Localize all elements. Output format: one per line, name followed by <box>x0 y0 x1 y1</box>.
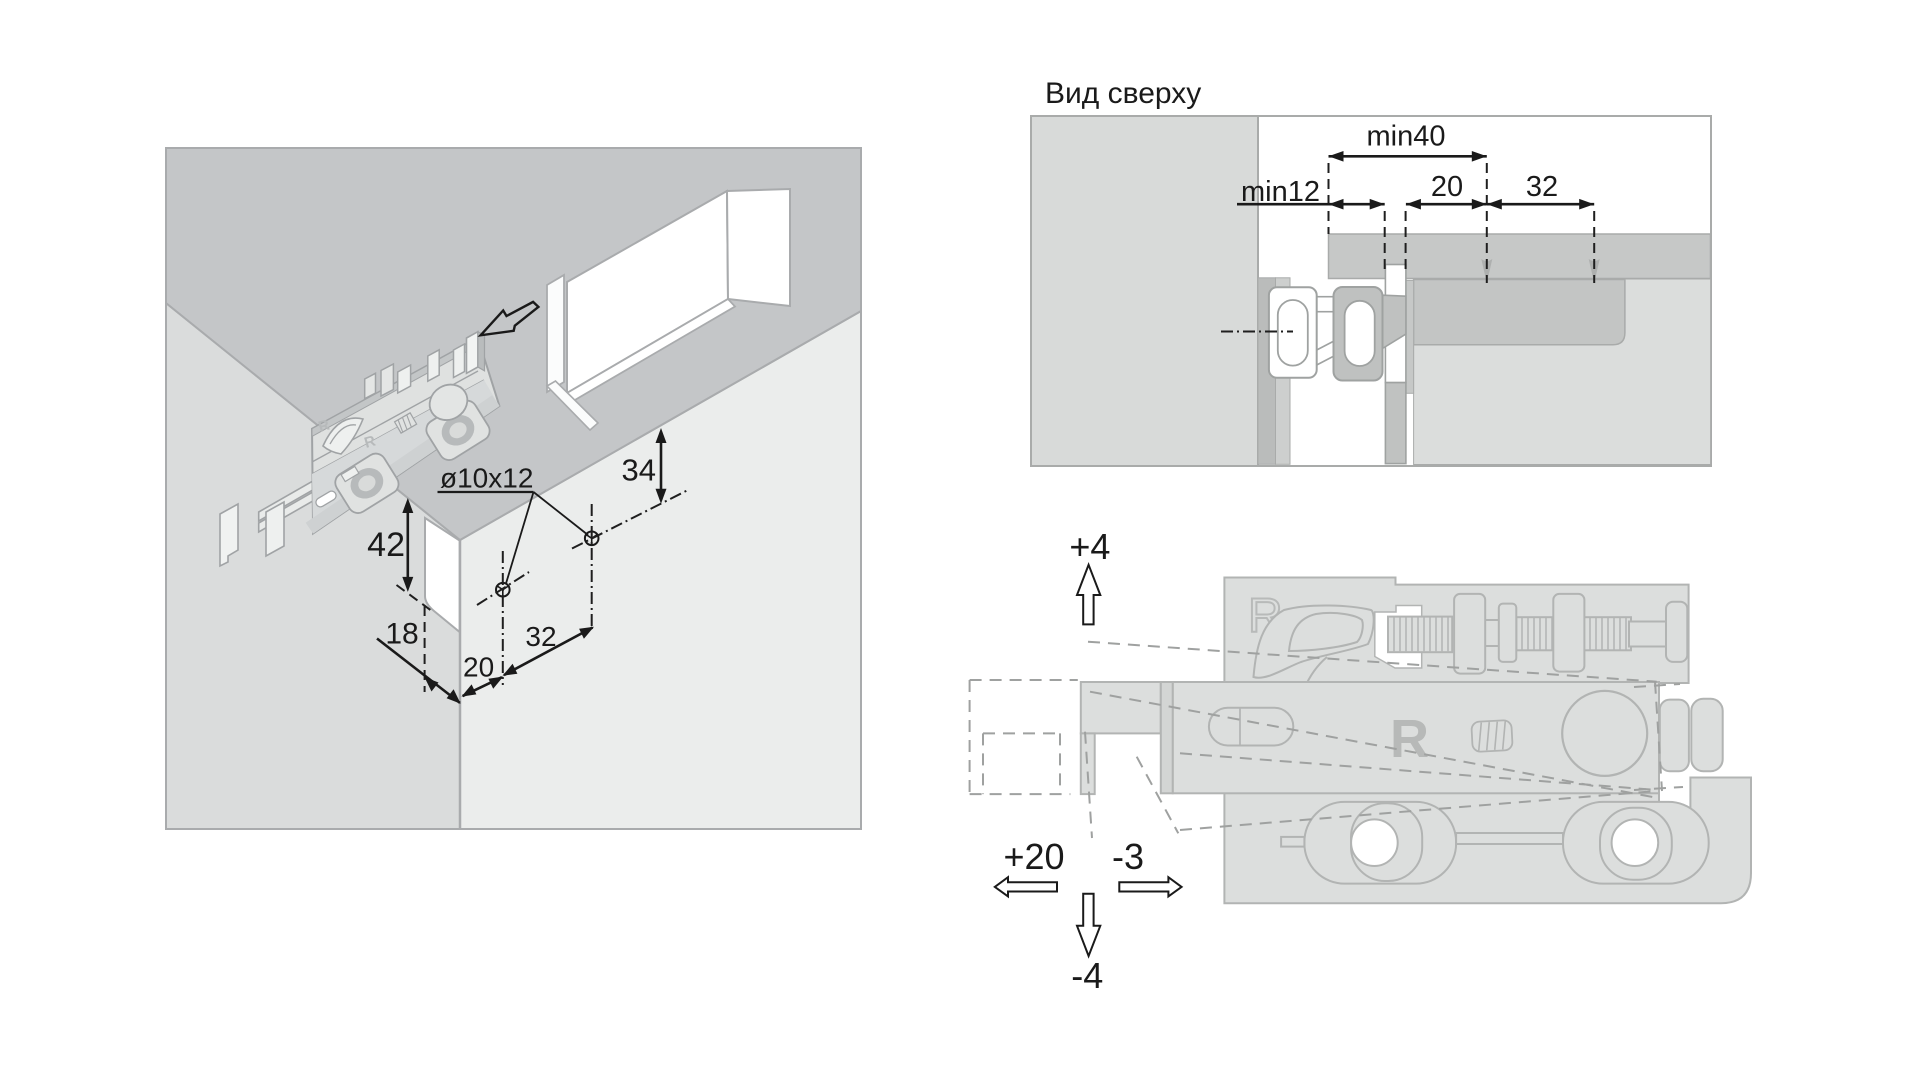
svg-text:34: 34 <box>622 453 656 488</box>
svg-text:min12: min12 <box>1241 176 1320 208</box>
svg-text:32: 32 <box>1526 171 1558 203</box>
svg-text:20: 20 <box>463 652 494 683</box>
svg-text:18: 18 <box>385 618 418 651</box>
svg-text:-3: -3 <box>1112 836 1144 877</box>
svg-text:+4: +4 <box>1069 526 1110 567</box>
svg-text:20: 20 <box>1431 171 1463 203</box>
svg-text:42: 42 <box>367 526 405 564</box>
svg-text:Вид сверху: Вид сверху <box>1045 77 1201 110</box>
svg-text:+20: +20 <box>1003 836 1064 877</box>
svg-text:ø10x12: ø10x12 <box>440 463 533 494</box>
svg-text:32: 32 <box>525 621 556 652</box>
svg-text:min40: min40 <box>1367 121 1446 153</box>
svg-text:-4: -4 <box>1071 955 1103 996</box>
svg-text:R: R <box>1390 709 1429 769</box>
